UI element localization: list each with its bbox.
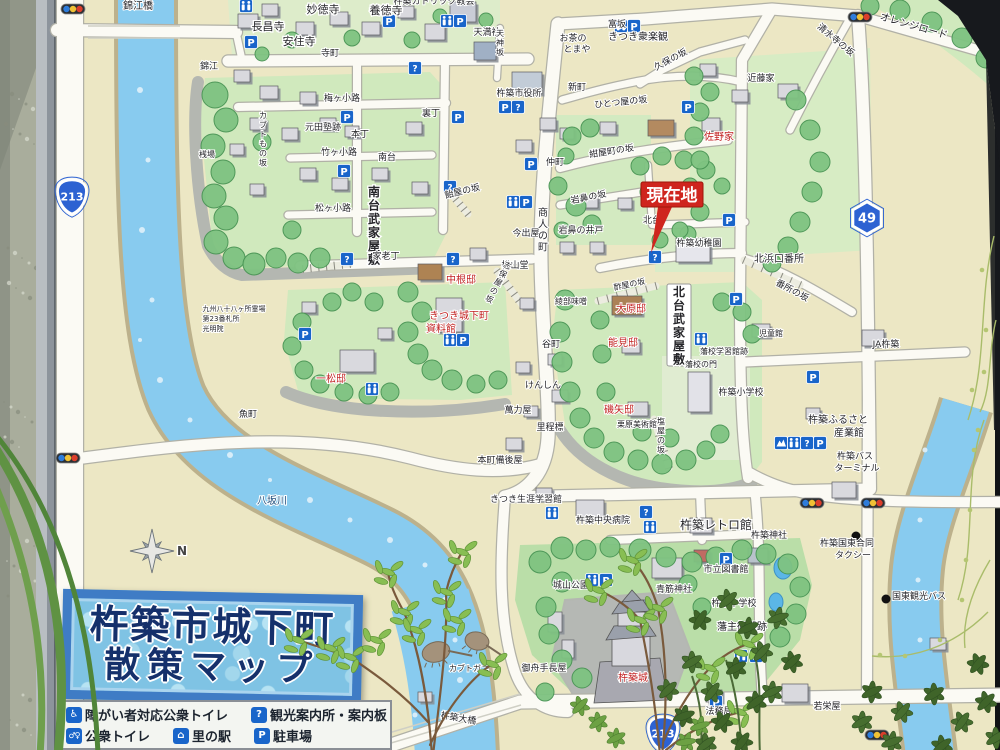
map-label: 近藤家 xyxy=(747,72,774,84)
map-label: 城山公園 xyxy=(553,580,589,591)
svg-text:P: P xyxy=(301,330,308,341)
map-label: 杵築レトロ館 xyxy=(680,517,752,532)
map-label: 青筋神社 xyxy=(656,583,692,595)
parking-icon: P xyxy=(254,728,270,744)
map-label: 法務局 xyxy=(705,705,732,717)
map-label: 北浜口番所 xyxy=(754,253,804,265)
svg-text:?: ? xyxy=(804,440,809,450)
svg-text:P: P xyxy=(522,198,529,209)
parking-item: P 駐車場 xyxy=(254,726,312,745)
toilet-icon xyxy=(507,196,520,209)
map-label: 御舟手長屋 xyxy=(521,662,566,674)
map-label: けんしん xyxy=(525,380,561,391)
parking-icon: P xyxy=(600,574,613,587)
map-label: 一松邸 xyxy=(316,372,346,385)
map-label: 長昌寺 xyxy=(252,20,285,33)
map-label: 岩鼻の井戸 xyxy=(558,224,603,236)
map-label: 能見邸 xyxy=(608,336,638,349)
map-label: 大原邸 xyxy=(616,302,646,315)
map-label: 今出屋 xyxy=(512,227,539,239)
map-label: カブトガニ xyxy=(449,663,489,673)
map-label: 松ヶ小路 xyxy=(315,202,351,214)
map-label: 杵築城 xyxy=(618,671,648,684)
current-location-label: 現在地 xyxy=(647,185,698,206)
map-label: 九州八十八ヶ所霊場 xyxy=(203,304,266,313)
info-icon: ? xyxy=(640,506,653,519)
map-label: 杵築国東合同 xyxy=(820,537,874,549)
map-label: 魚町 xyxy=(239,408,257,420)
route-shield-213: 213 xyxy=(646,714,680,750)
map-label: 杵築中学校 xyxy=(711,597,756,609)
svg-text:P: P xyxy=(527,160,534,171)
map-label: 第23番札所 xyxy=(203,314,240,323)
svg-text:P: P xyxy=(501,103,508,114)
map-label: カブトもの坂 xyxy=(259,111,267,168)
map-label: ターミナル xyxy=(834,463,879,474)
map-label: 谷町 xyxy=(542,339,560,350)
svg-text:P: P xyxy=(247,38,254,49)
map-label: 若栄屋 xyxy=(813,700,840,712)
svg-text:?: ? xyxy=(515,104,520,114)
toilet-icon xyxy=(546,507,559,520)
map-label: 新町 xyxy=(568,81,586,93)
svg-text:?: ? xyxy=(643,509,648,519)
map-label: 塩屋の坂 xyxy=(657,416,665,455)
info-icon: ? xyxy=(512,101,525,114)
map-label: 杵築バス xyxy=(837,450,873,462)
map-label: 杵築幼稚園 xyxy=(676,237,721,249)
svg-text:?: ? xyxy=(412,65,417,75)
map-label: 北台武家屋敷 xyxy=(673,284,686,367)
info-icon: ? xyxy=(649,251,662,264)
accessible-toilet-icon: ♿ xyxy=(66,707,82,723)
map-label: 本丁 xyxy=(351,128,369,140)
parking-icon: P xyxy=(807,371,820,384)
parking-icon: P xyxy=(750,650,763,663)
map-label: 八坂川 xyxy=(257,495,287,507)
toilet-icon xyxy=(644,521,657,534)
map-title-line2: 散策マップ xyxy=(104,646,320,688)
legend-item: ♿ 障がい者対応公衆トイレ xyxy=(66,705,228,724)
map-label: 錦江橋 xyxy=(123,0,153,12)
map-label: 本町備後屋 xyxy=(477,454,522,466)
map-label: 萬力屋 xyxy=(504,404,531,416)
map-label: 杵築小学校 xyxy=(718,386,763,398)
svg-text:P: P xyxy=(454,113,461,124)
info-icon: ? xyxy=(251,707,267,723)
parking-icon: P xyxy=(720,553,733,566)
sato-no-eki-icon xyxy=(775,437,788,450)
bus-stop-dot-icon xyxy=(882,595,891,604)
map-label: 資料館 xyxy=(426,322,456,335)
toilet-icon: ♂♀ xyxy=(66,728,82,744)
traffic-light-icon xyxy=(800,498,824,508)
map-label: 佐野家 xyxy=(704,130,734,143)
info-icon: ? xyxy=(447,253,460,266)
map-label: 仲町 xyxy=(546,156,564,168)
map-label: 市立図書館 xyxy=(703,563,748,575)
map-label: 杵築市役所 xyxy=(496,87,541,99)
map-label: 国東観光バス xyxy=(892,590,946,602)
legend-item-label: 里の駅 xyxy=(192,726,231,745)
traffic-light-icon xyxy=(61,4,85,14)
legend-item-label: 観光案内所・案内板 xyxy=(270,705,387,724)
parking-icon: P xyxy=(299,328,312,341)
map-label: 元田塾跡 xyxy=(305,121,341,133)
map-label: 藩校学習館跡 xyxy=(700,346,748,356)
svg-text:213: 213 xyxy=(652,728,675,741)
map-label: 中根邸 xyxy=(446,273,476,286)
map-label: 天神坂 xyxy=(496,29,504,57)
map-label: 寺町 xyxy=(321,48,339,59)
map-label: 梅ヶ小路 xyxy=(324,92,360,104)
svg-text:?: ? xyxy=(652,254,657,264)
toilet-icon xyxy=(695,333,708,346)
svg-text:P: P xyxy=(456,17,463,28)
map-label: きつき城下町 xyxy=(429,310,489,322)
map-label: 妙徳寺 xyxy=(307,2,340,16)
map-label: 南台 xyxy=(378,151,396,163)
map-label: 藩校の門 xyxy=(685,359,717,369)
legend-item-label: 障がい者対応公衆トイレ xyxy=(85,705,228,724)
map-label: 裏丁 xyxy=(422,107,440,119)
svg-text:P: P xyxy=(385,17,392,28)
legend-item-label: 公衆トイレ xyxy=(85,726,150,745)
wall xyxy=(0,0,60,750)
traffic-light-icon xyxy=(861,498,885,508)
info-icon: ? xyxy=(801,437,814,450)
map-legend: ♿ 障がい者対応公衆トイレ ? 観光案内所・案内板 ♂♀ 公衆トイレ ⌂ 里の駅… xyxy=(58,700,392,750)
parking-icon: P xyxy=(682,101,695,114)
map-label: 杵築ふるさと xyxy=(808,413,868,426)
svg-text:P: P xyxy=(343,113,350,124)
parking-icon: P xyxy=(452,111,465,124)
svg-text:P: P xyxy=(459,336,466,347)
map-label: N xyxy=(177,544,187,558)
svg-text:?: ? xyxy=(344,256,349,266)
parking-icon: P xyxy=(454,15,467,28)
sign-frame xyxy=(36,0,48,750)
parking-icon: P xyxy=(520,196,533,209)
legend-item-label: 駐車場 xyxy=(273,726,312,745)
traffic-light-icon xyxy=(56,453,80,463)
map-label: 桟場 xyxy=(199,149,215,159)
parking-icon: P xyxy=(457,334,470,347)
map-label: とまや xyxy=(563,44,590,55)
map-label: 商人の町 xyxy=(538,206,548,254)
map-label: きつき衆楽観 xyxy=(608,30,668,43)
parking-icon: P xyxy=(499,101,512,114)
svg-text:P: P xyxy=(725,216,732,227)
toilet-icon xyxy=(441,15,454,28)
map-label: 竹ヶ小路 xyxy=(321,146,357,158)
map-label: タクシー xyxy=(835,550,871,561)
map-label: 藩主御殿跡 xyxy=(717,620,767,633)
map-label: 安住寺 xyxy=(283,34,316,48)
traffic-light-icon xyxy=(865,730,889,740)
map-label: 杵築カトリック教会 xyxy=(393,0,474,7)
parking-icon: P xyxy=(628,20,641,33)
map-label: 杵築神社 xyxy=(751,529,787,541)
map-label: 産業館 xyxy=(834,426,864,439)
svg-text:P: P xyxy=(809,373,816,384)
map-label: 家老丁 xyxy=(372,250,399,262)
svg-text:P: P xyxy=(602,576,609,587)
sato-no-eki-item: ⌂ 里の駅 xyxy=(173,726,231,745)
map-label: 磯矢邸 xyxy=(604,403,634,416)
map-title-sign: 杵築市城下町 散策マップ xyxy=(61,589,363,705)
toilet-icon xyxy=(240,0,253,13)
svg-text:P: P xyxy=(816,439,823,450)
sato-no-eki-icon: ⌂ xyxy=(173,728,189,744)
info-icon: ? xyxy=(341,253,354,266)
svg-text:P: P xyxy=(340,167,347,178)
parking-icon: P xyxy=(723,214,736,227)
svg-text:213: 213 xyxy=(61,191,84,204)
map-label: 児童館 xyxy=(759,328,783,338)
parking-icon: P xyxy=(245,36,258,49)
traffic-light-icon xyxy=(848,12,872,22)
svg-text:P: P xyxy=(752,652,759,663)
map-label: JA杵築 xyxy=(872,338,900,350)
map-label: きつき生涯学習館 xyxy=(490,493,562,505)
svg-text:P: P xyxy=(684,103,691,114)
map-label: 里程標 xyxy=(536,421,563,433)
toilet-icon xyxy=(735,650,748,663)
parking-icon: P xyxy=(814,437,827,450)
svg-text:P: P xyxy=(732,295,739,306)
parking-icon: P xyxy=(730,293,743,306)
toilet-icon xyxy=(788,437,801,450)
map-label: 杵築中央病院 xyxy=(576,514,630,526)
toilet-icon xyxy=(366,383,379,396)
map-sign-photo: PPP?PPP?PPP?PP?P??PPPP?P?PPPP 21321349 錦… xyxy=(0,0,1000,750)
map-label: 富坂 xyxy=(608,18,626,30)
map-label: 綾部味噌 xyxy=(555,296,587,306)
svg-text:49: 49 xyxy=(858,212,876,227)
legend-item: ? 観光案内所・案内板 xyxy=(251,705,387,724)
svg-text:?: ? xyxy=(450,256,455,266)
info-icon: ? xyxy=(409,62,422,75)
parking-icon: P xyxy=(341,111,354,124)
toilet-icon xyxy=(444,334,457,347)
parking-icon: P xyxy=(338,165,351,178)
parking-icon: P xyxy=(525,158,538,171)
legend-item: ♂♀ 公衆トイレ xyxy=(66,726,150,745)
map-label: お茶の xyxy=(559,32,586,44)
map-label: 栗原美術館 xyxy=(617,419,657,429)
map-label: 光明院 xyxy=(203,324,224,333)
map-label: 錦江 xyxy=(200,60,218,72)
